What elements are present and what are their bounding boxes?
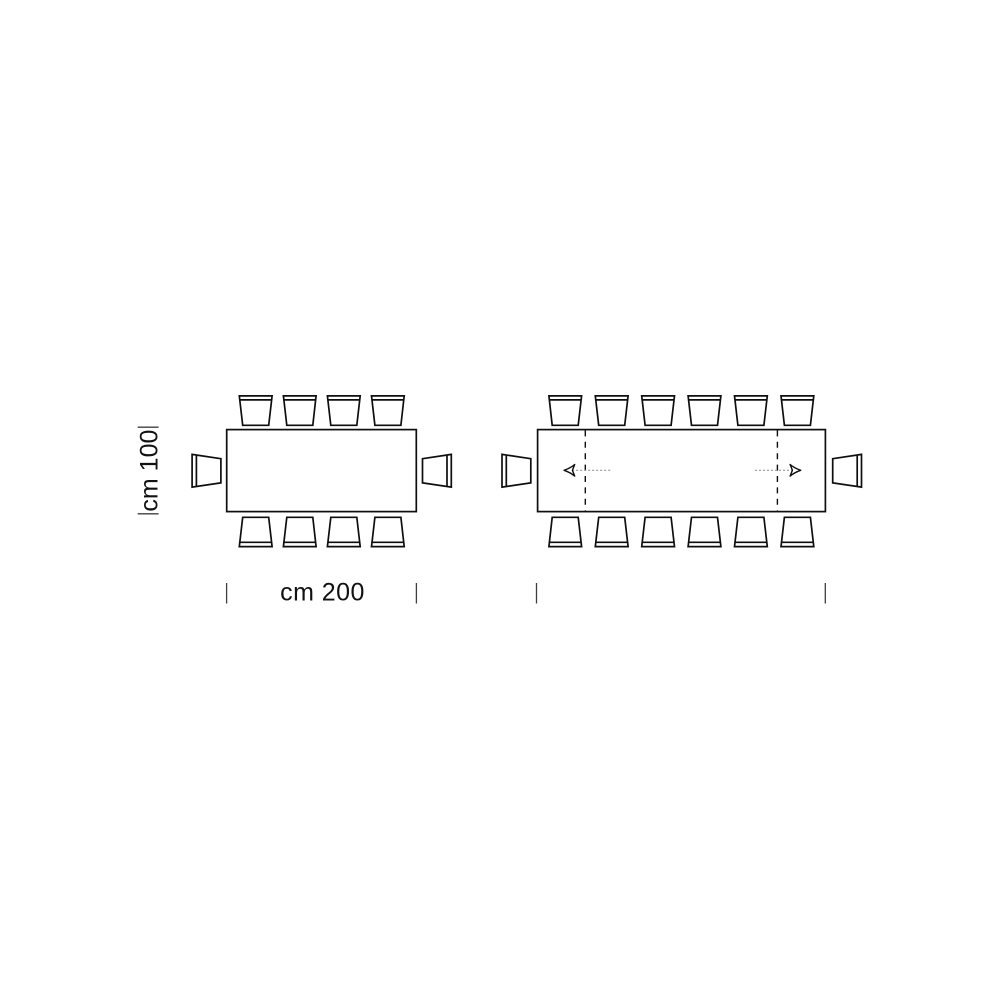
svg-text:cm 200: cm 200 [280, 579, 365, 607]
svg-text:cm 100: cm 100 [135, 430, 163, 512]
